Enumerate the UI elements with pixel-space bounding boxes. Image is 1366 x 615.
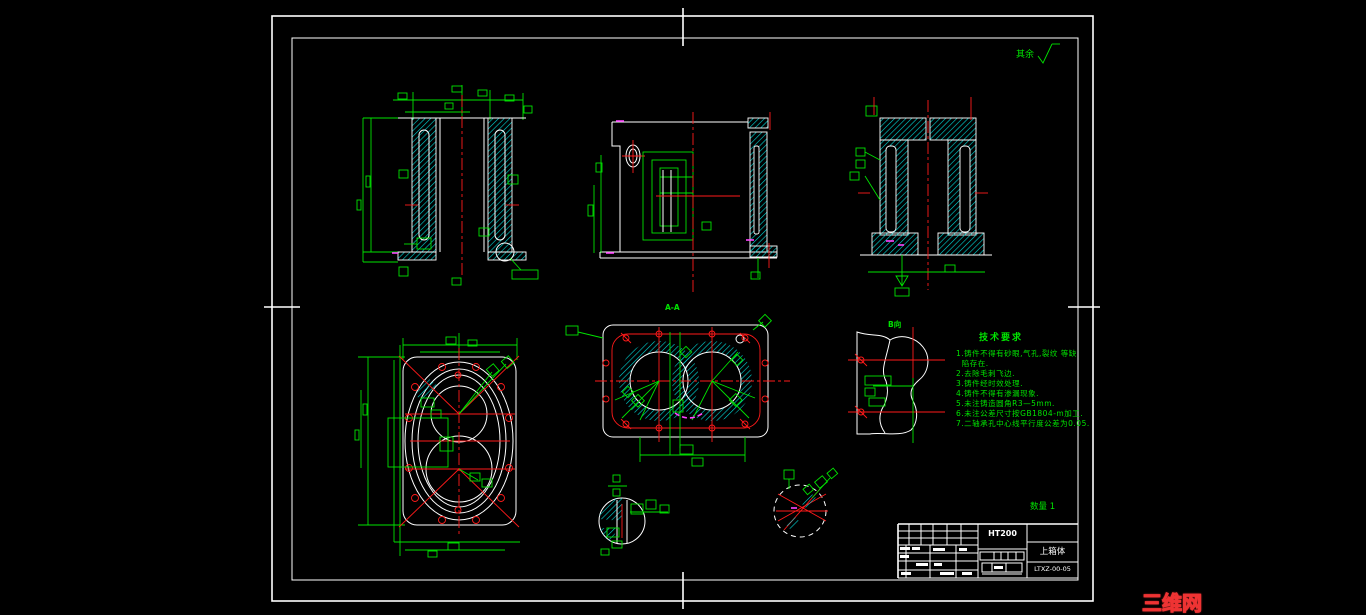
title-block-part-name: 上箱体: [1027, 545, 1078, 557]
tech-requirement-line: 陷存在.: [956, 359, 989, 368]
surface-finish-symbol: [1038, 44, 1060, 63]
plan-view: [355, 333, 520, 557]
detail-c-view: [599, 475, 669, 555]
surface-finish-note: 其余: [1016, 47, 1034, 60]
tech-requirement-line: 6.未注公差尺寸按GB1804-m加工.: [956, 409, 1083, 418]
quantity-note: 数量 1: [1030, 500, 1055, 512]
title-block-drawing-no: LTXZ-00-05: [1027, 565, 1078, 573]
tech-requirement-line: 1.铸件不得有砂眼,气孔,裂纹 等缺: [956, 349, 1077, 358]
watermark: 三维网www.3dportal.cn: [1142, 587, 1366, 615]
cad-drawing-canvas: 其余 技术要求 1.铸件不得有砂眼,气孔,裂纹 等缺 陷存在. 2.去除毛刺飞边…: [0, 0, 1366, 615]
tech-requirement-line: 3.铸件经时效处理.: [956, 379, 1023, 388]
title-block-material: HT200: [978, 529, 1027, 538]
section-aa-label: A-A: [665, 303, 680, 312]
tech-requirements-title: 技术要求: [979, 330, 1023, 343]
tech-requirement-line: 5.未注铸造圆角R3—5mm.: [956, 399, 1055, 408]
drawing-linework: [0, 0, 1366, 615]
aux-view-b: [848, 327, 945, 443]
side-halfsection-view: [588, 112, 777, 295]
sheet-border: [264, 8, 1100, 609]
full-section-view: [850, 97, 992, 296]
detail-d-view: [774, 468, 838, 537]
section-aa-view: [566, 314, 790, 466]
aux-view-b-label: B向: [888, 319, 901, 330]
front-section-view: [357, 85, 538, 285]
tech-requirement-line: 7.二轴承孔中心线平行度公差为0.05.: [956, 419, 1090, 428]
tech-requirement-line: 2.去除毛刺飞边.: [956, 369, 1015, 378]
tech-requirement-line: 4.铸件不得有渗漏现象.: [956, 389, 1039, 398]
